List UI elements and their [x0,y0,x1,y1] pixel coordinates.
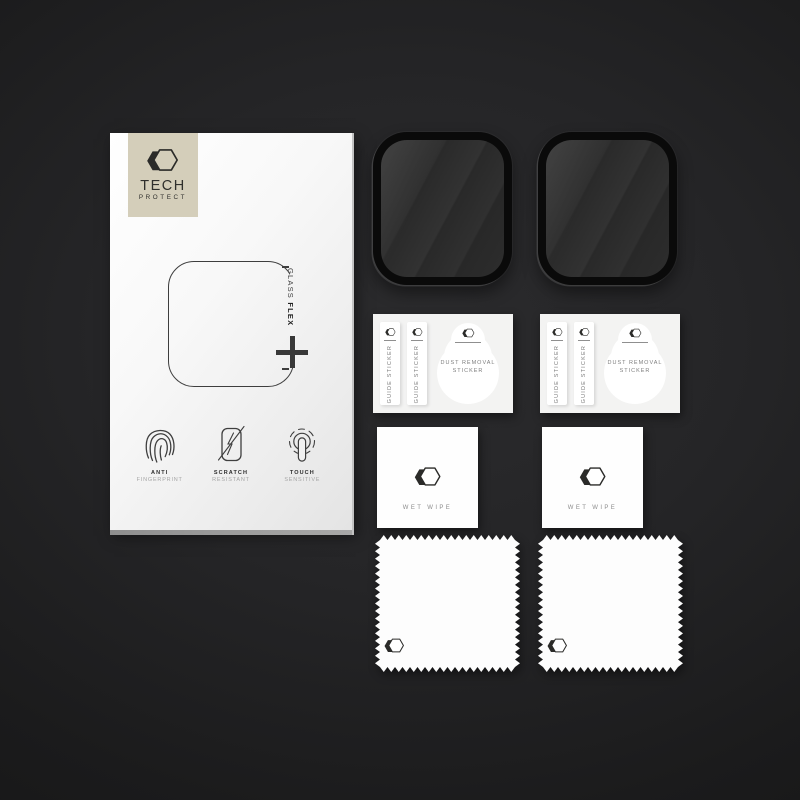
sticker-card-2: GUIDE STICKER GUIDE STICKER DUST REMOVAL… [540,314,680,413]
microfiber-cloth-1 [375,535,520,672]
feature-title: ANTI [151,470,168,476]
double-hexagon-icon [414,464,442,489]
protector-glass [381,140,504,277]
outline-tick-bottom [282,368,289,370]
feature-subtitle: RESISTANT [212,477,250,483]
scratch-resistant-icon [214,425,248,465]
product-name-vertical: GLASS FLEX [286,268,295,326]
feature-anti-fingerprint: ANTI FINGERPRINT [124,425,195,483]
feature-subtitle: SENSITIVE [284,477,320,483]
dust-removal-label: DUST REMOVALSTICKER [608,359,663,375]
guide-sticker-strip: GUIDE STICKER [547,322,567,405]
dust-removal-sticker: DUST REMOVALSTICKER [430,321,506,406]
feature-row: ANTI FINGERPRINT SCRATCH RESISTANT [124,425,338,483]
protector-glass [546,140,669,277]
guide-sticker-strip: GUIDE STICKER [407,322,427,405]
guide-sticker-label: GUIDE STICKER [387,345,393,403]
wet-wipe-label: WET WIPE [403,505,452,511]
double-hexagon-icon [462,327,475,339]
dust-removal-sticker: DUST REMOVALSTICKER [597,321,673,406]
wet-wipe-2: WET WIPE [542,427,643,528]
guide-sticker-strip: GUIDE STICKER [380,322,400,405]
touch-sensitive-icon [282,425,322,465]
box-right-edge [352,133,354,535]
feature-touch-sensitive: TOUCH SENSITIVE [267,425,338,483]
screen-protector-2 [538,132,677,285]
feature-title: SCRATCH [214,470,248,476]
brand-name: TECH [140,179,185,193]
screen-protector-1 [373,132,512,285]
double-hexagon-icon [552,327,563,337]
strip-divider [551,340,563,341]
double-hexagon-icon [384,636,405,655]
dust-removal-label: DUST REMOVALSTICKER [441,359,496,375]
double-hexagon-icon [385,327,396,337]
product-photo-scene: TECH PROTECT GLASS FLEX ANTI [0,0,800,800]
guide-sticker-strip: GUIDE STICKER [574,322,594,405]
brand-logo-panel: TECH PROTECT [128,133,198,217]
wet-wipe-label: WET WIPE [568,505,617,511]
guide-sticker-label: GUIDE STICKER [414,345,420,403]
blob-divider [455,342,481,343]
guide-sticker-label: GUIDE STICKER [554,345,560,403]
feature-subtitle: FINGERPRINT [137,477,183,483]
strip-divider [411,340,423,341]
retail-box: TECH PROTECT GLASS FLEX ANTI [110,133,352,530]
feature-scratch-resistant: SCRATCH RESISTANT [195,425,266,483]
plus-icon [276,336,308,368]
double-hexagon-icon [412,327,423,337]
watch-shape-outline: GLASS FLEX [168,261,294,387]
double-hexagon-icon [579,327,590,337]
strip-divider [578,340,590,341]
strip-divider [384,340,396,341]
feature-title: TOUCH [290,470,315,476]
wet-wipe-1: WET WIPE [377,427,478,528]
flex-word: FLEX [286,302,295,326]
double-hexagon-icon [547,636,568,655]
glass-word: GLASS [286,268,295,299]
sticker-card-1: GUIDE STICKER GUIDE STICKER DUST REMOVAL… [373,314,513,413]
microfiber-cloth-2 [538,535,683,672]
fingerprint-icon [144,425,176,465]
brand-subname: PROTECT [139,194,187,201]
blob-divider [622,342,648,343]
double-hexagon-icon [579,464,607,489]
double-hexagon-icon [146,145,180,175]
double-hexagon-icon [629,327,642,339]
box-bottom-edge [110,530,354,535]
guide-sticker-label: GUIDE STICKER [581,345,587,403]
